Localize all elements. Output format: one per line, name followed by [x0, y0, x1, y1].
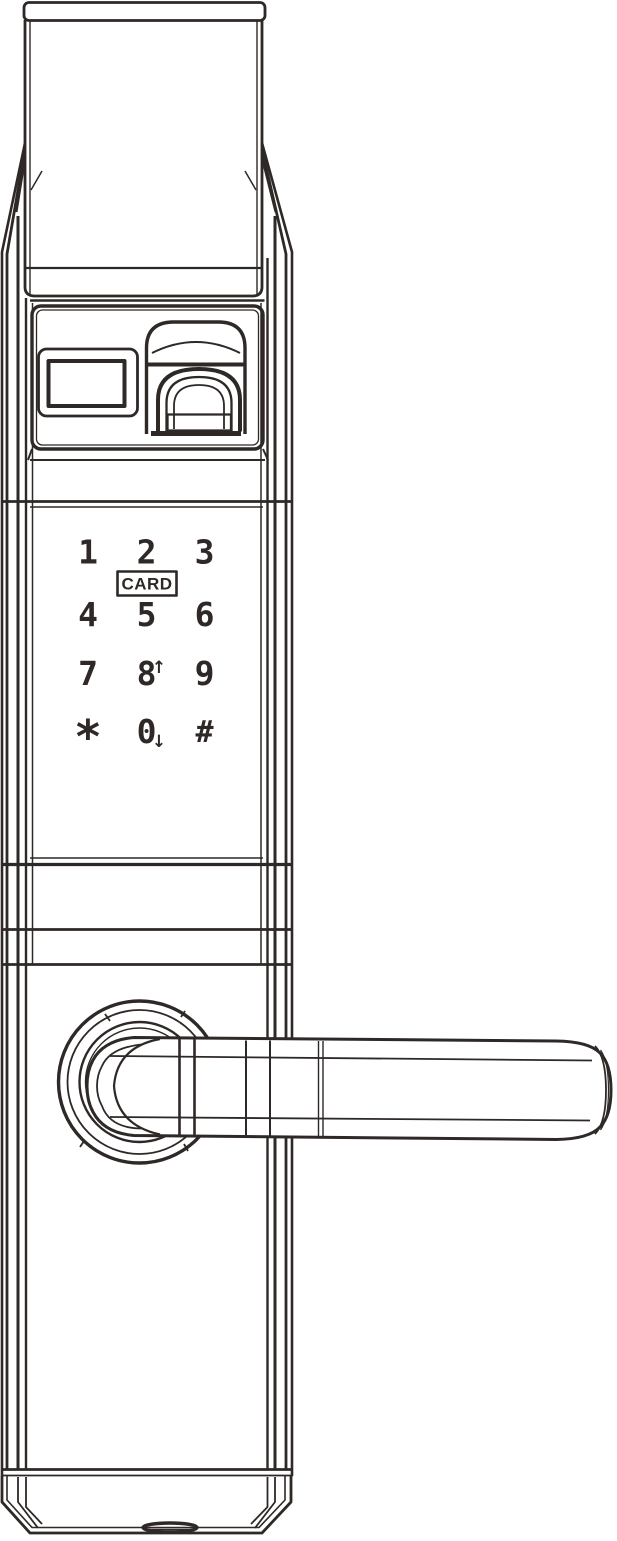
shoulder-bend-ticks	[31, 171, 256, 190]
top-cap	[24, 3, 265, 21]
top-block-outline	[25, 20, 262, 296]
key-7[interactable]: 7	[78, 654, 98, 693]
handle-lever[interactable]	[87, 1038, 611, 1140]
fingerprint-sensor-pad	[168, 415, 232, 431]
handle	[59, 1001, 612, 1163]
key-5[interactable]: 5	[137, 595, 157, 634]
mid-body-seams	[2, 930, 293, 965]
key-1[interactable]: 1	[78, 533, 98, 572]
key-2[interactable]: 2	[137, 533, 157, 572]
reader-panel	[28, 301, 268, 461]
key-9[interactable]: 9	[195, 654, 215, 693]
key-hash[interactable]: #	[195, 715, 213, 750]
bottom-cap-chamfers	[18, 1477, 275, 1528]
fingerprint-module-top-arc	[152, 342, 240, 353]
up-arrow-icon: ↑	[152, 658, 166, 678]
fingerprint-sensor-arch[interactable]	[158, 369, 240, 432]
key-3[interactable]: 3	[195, 533, 215, 572]
bottom-cap-inner	[7, 1476, 285, 1528]
key-6[interactable]: 6	[195, 595, 215, 634]
display-window-glass	[49, 361, 125, 406]
fingerprint-sensor-arch-inner	[174, 385, 224, 429]
card-reader-label: CARD	[121, 575, 172, 594]
down-arrow-icon: ↓	[152, 732, 166, 752]
key-star[interactable]: *	[74, 710, 102, 764]
display-window	[39, 349, 138, 416]
top-cover	[24, 3, 265, 297]
lever-outline[interactable]	[87, 1038, 611, 1140]
fingerprint-module[interactable]	[147, 322, 246, 434]
top-block-inner-edges	[30, 21, 257, 294]
key-4[interactable]: 4	[78, 595, 98, 634]
door-lock-drawing: 1 2 3 CARD 4 5 6 7 8 ↑ 9 * 0 ↓ #	[0, 0, 617, 1541]
keypad: 1 2 3 CARD 4 5 6 7 8 ↑ 9 * 0 ↓ #	[74, 533, 214, 765]
